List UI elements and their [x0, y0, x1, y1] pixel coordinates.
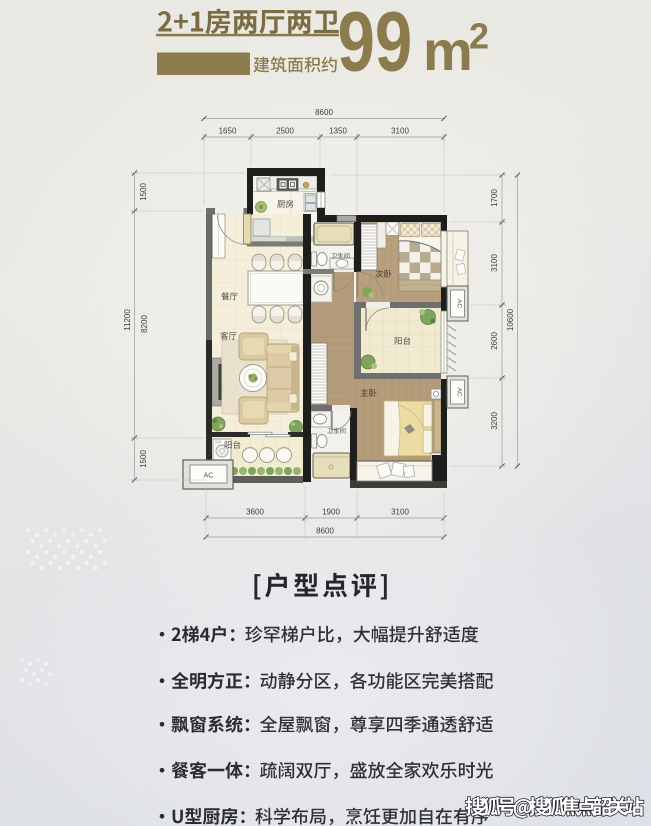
svg-text:3100: 3100	[391, 127, 409, 136]
svg-text:10600: 10600	[506, 308, 515, 331]
svg-text:3200: 3200	[490, 412, 499, 430]
svg-text:1650: 1650	[219, 127, 237, 136]
svg-text:1700: 1700	[490, 189, 499, 207]
svg-text:8600: 8600	[316, 527, 334, 536]
svg-text:8200: 8200	[140, 315, 149, 333]
svg-text:2600: 2600	[490, 332, 499, 350]
svg-text:1900: 1900	[322, 508, 340, 517]
svg-text:2500: 2500	[276, 127, 294, 136]
svg-text:1500: 1500	[139, 183, 148, 201]
svg-text:99: 99	[338, 0, 413, 89]
svg-text:3100: 3100	[391, 508, 409, 517]
svg-text:1350: 1350	[329, 127, 347, 136]
svg-text:3600: 3600	[246, 508, 264, 517]
svg-text:AC: AC	[456, 299, 463, 308]
svg-text:AC: AC	[204, 473, 214, 480]
svg-text:AC: AC	[456, 387, 463, 396]
svg-text:1500: 1500	[139, 450, 148, 468]
svg-text:11200: 11200	[123, 309, 132, 331]
svg-text:8600: 8600	[315, 108, 333, 117]
svg-text:3100: 3100	[490, 254, 499, 272]
svg-text:2: 2	[469, 16, 489, 57]
svg-text:m: m	[423, 19, 473, 82]
